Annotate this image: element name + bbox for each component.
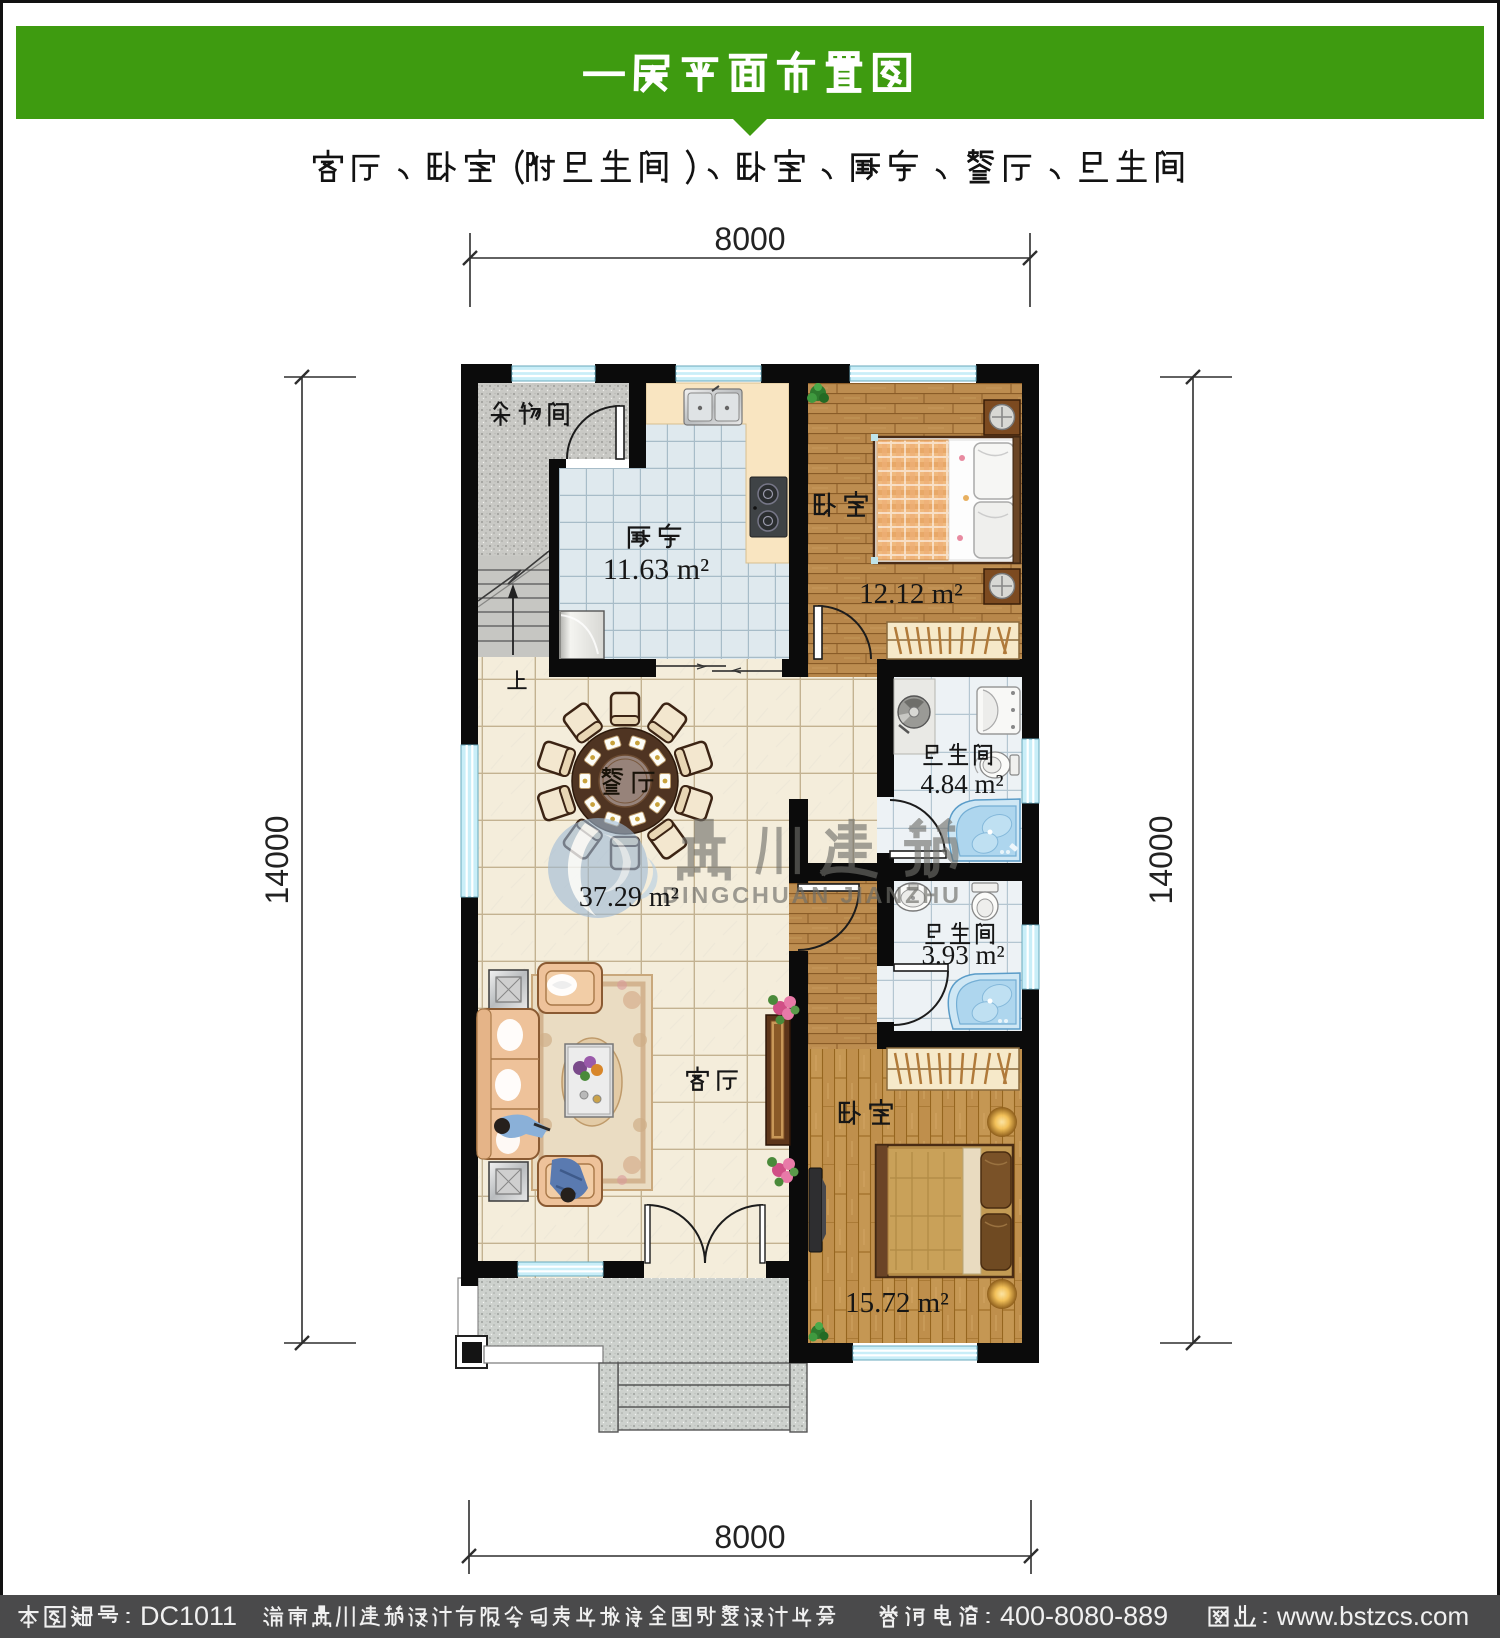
svg-text:4.84 m²: 4.84 m² [920,769,1003,799]
svg-text:www.bstzcs.com: www.bstzcs.com [1276,1601,1469,1631]
svg-text:DC1011: DC1011 [140,1601,237,1631]
svg-text:15.72 m²: 15.72 m² [845,1287,949,1319]
svg-text:400-8080-889: 400-8080-889 [1000,1601,1168,1631]
svg-text:14000: 14000 [259,816,295,905]
svg-text:12.12 m²: 12.12 m² [859,578,963,610]
svg-text:37.29 m²: 37.29 m² [579,882,679,913]
svg-text:8000: 8000 [714,221,785,257]
svg-text:11.63 m²: 11.63 m² [603,553,709,586]
svg-text:14000: 14000 [1143,816,1179,905]
svg-text:DINGCHUAN JIANZHU: DINGCHUAN JIANZHU [662,882,962,908]
svg-text:8000: 8000 [714,1519,785,1555]
svg-text:3.93 m²: 3.93 m² [921,940,1004,970]
